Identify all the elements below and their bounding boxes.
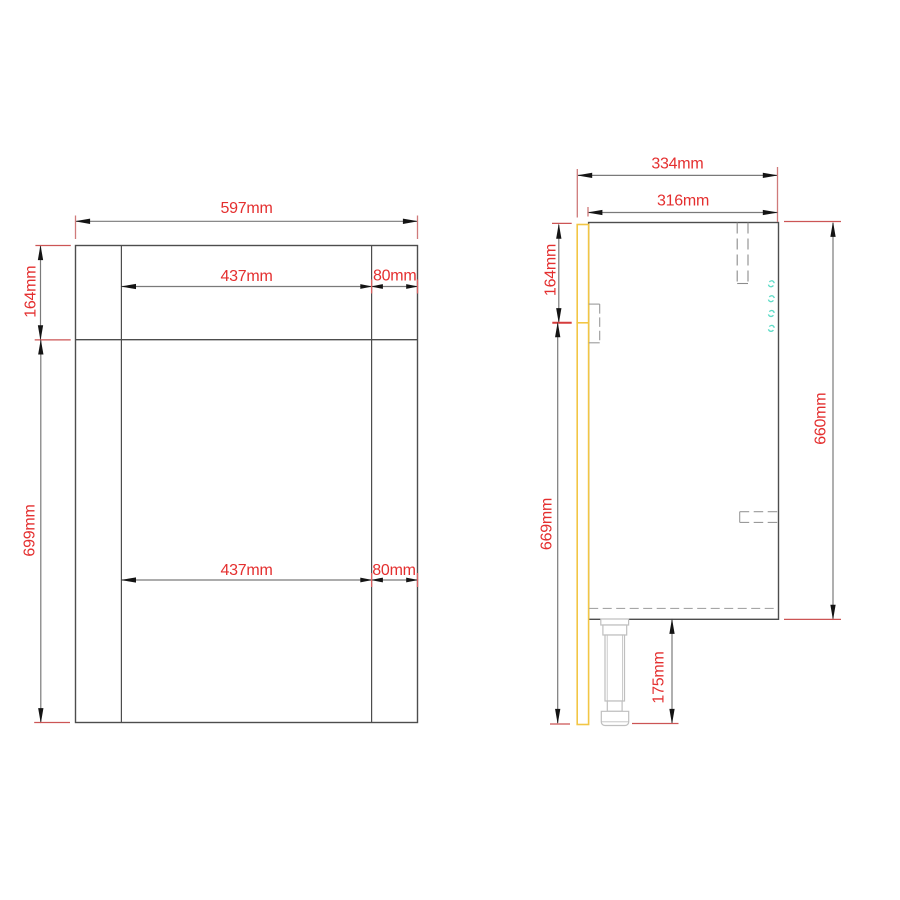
svg-text:316mm: 316mm [657,192,709,209]
svg-text:437mm: 437mm [220,562,272,579]
svg-text:669mm: 669mm [539,498,556,550]
svg-text:164mm: 164mm [543,244,560,296]
svg-text:660mm: 660mm [813,393,830,445]
svg-text:164mm: 164mm [23,266,40,318]
svg-text:80mm: 80mm [372,562,415,579]
svg-text:80mm: 80mm [373,268,416,285]
svg-text:175mm: 175mm [651,651,668,703]
svg-text:699mm: 699mm [22,504,39,556]
svg-text:437mm: 437mm [220,268,272,285]
svg-text:334mm: 334mm [651,156,703,173]
svg-text:597mm: 597mm [220,200,272,217]
